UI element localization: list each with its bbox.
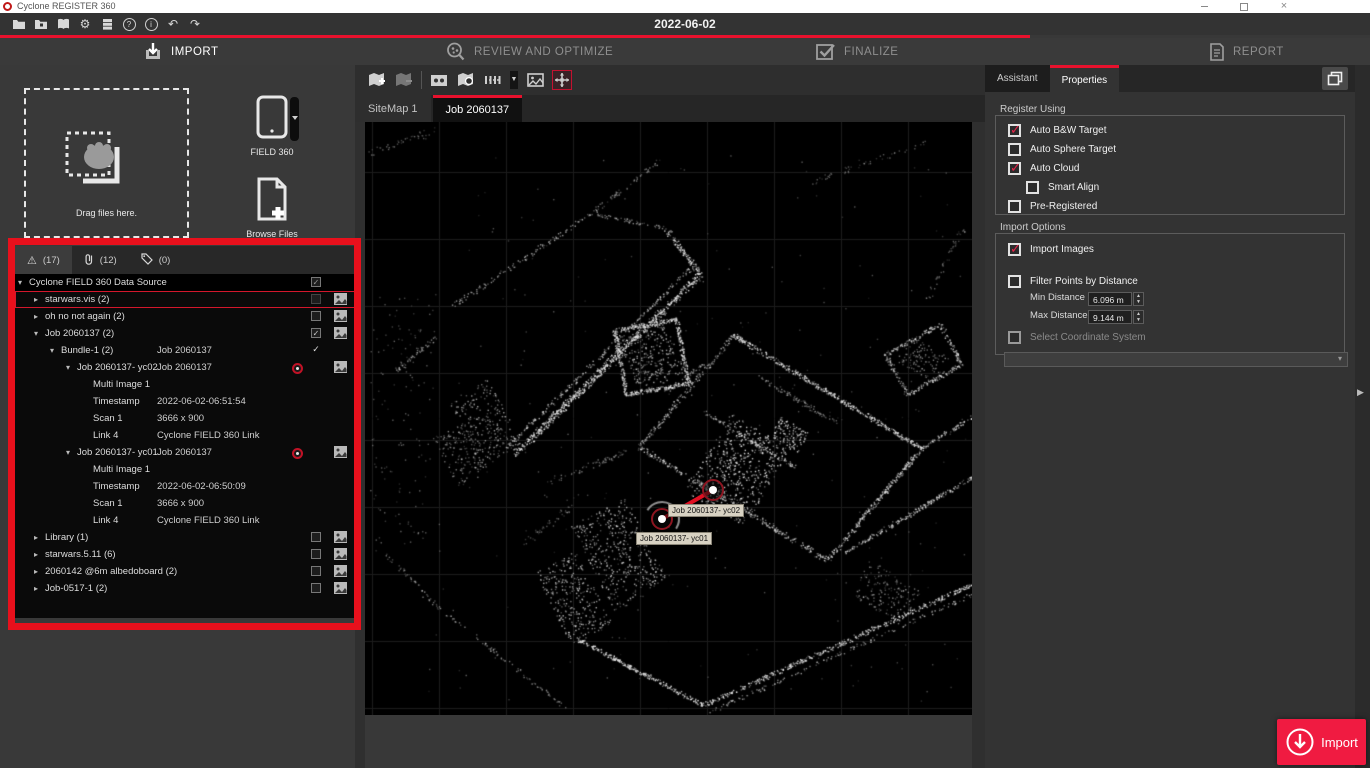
app-title: Cyclone REGISTER 360 <box>17 0 116 13</box>
scan-marker[interactable] <box>702 479 724 501</box>
option-auto-b-w-target[interactable]: ✓Auto B&W Target <box>1008 123 1336 141</box>
thumbnail-image-icon[interactable] <box>334 310 347 322</box>
tree-row[interactable]: ▸Library (1) <box>15 529 355 546</box>
filter-points-checkbox[interactable] <box>1008 275 1021 288</box>
sitemap-tabs: SiteMap 1 Job 2060137 <box>355 95 985 122</box>
tree-row-label: Job-0517-1 (2) <box>45 580 107 597</box>
import-arrow-icon <box>1285 727 1315 757</box>
open-project-icon[interactable] <box>12 16 26 32</box>
tree-row[interactable]: Multi Image 1 <box>15 461 355 478</box>
issues-count: (17) <box>43 255 60 266</box>
register-using-group: ✓Auto B&W TargetAuto Sphere Target✓Auto … <box>995 115 1345 215</box>
tree-row-label: starwars.5.11 (6) <box>45 546 116 563</box>
tree-row-label: Bundle-1 (2) <box>61 342 113 359</box>
import-project-icon[interactable] <box>34 16 48 32</box>
tree-row[interactable]: Scan 13666 x 900 <box>15 495 355 512</box>
collapse-arrow-icon[interactable]: ▾ <box>34 325 38 342</box>
tree-row-value: 3666 x 900 <box>157 495 204 512</box>
option-auto-sphere-target[interactable]: Auto Sphere Target <box>1008 142 1336 160</box>
right-edge-strip <box>1355 65 1370 768</box>
stage-finalize[interactable]: FINALIZE <box>815 38 898 65</box>
checkbox[interactable]: ✓ <box>1008 162 1021 175</box>
option-filter-points[interactable]: Filter Points by Distance <box>1008 274 1338 292</box>
tree-row[interactable]: ▾Job 2060137 (2)✓ <box>15 325 355 342</box>
field360-slider[interactable] <box>290 97 299 141</box>
titlebar: Cyclone REGISTER 360 × <box>0 0 1370 13</box>
tab-properties[interactable]: Properties <box>1050 65 1120 92</box>
tree-row-label: Job 2060137- yc02 <box>77 359 158 376</box>
tags-count: (0) <box>159 255 171 266</box>
tree-row-label: Multi Image 1 <box>93 376 150 393</box>
tree-checkbox[interactable]: ✓ <box>311 277 321 287</box>
tree-row-value: Cyclone FIELD 360 Link <box>157 512 259 529</box>
import-tray-icon <box>142 42 164 62</box>
tree-row[interactable]: ▸starwars.5.11 (6) <box>15 546 355 563</box>
tree-row[interactable]: ▾Bundle-1 (2)Job 2060137✓ <box>15 342 355 359</box>
tree-checkbox[interactable]: ✓ <box>311 345 321 355</box>
scan-marker-label: Job 2060137- yc01 <box>636 532 712 545</box>
tree-checkbox[interactable] <box>311 294 321 304</box>
tree-checkbox[interactable] <box>311 311 321 321</box>
tree-row-label: starwars.vis (2) <box>45 291 109 308</box>
thumbnail-image-icon[interactable] <box>334 582 347 594</box>
finalize-check-icon <box>815 42 837 62</box>
app-icon <box>3 2 12 11</box>
tree-row-label: Scan 1 <box>93 495 123 512</box>
tree-checkbox[interactable] <box>311 532 321 542</box>
min-distance-spinner[interactable]: ▲▼ <box>1133 292 1144 306</box>
tree-checkbox[interactable]: ✓ <box>311 328 321 338</box>
min-distance-row: Min Distance 6.096 m ▲▼ <box>1030 292 1330 307</box>
tree-row[interactable]: Multi Image 1 <box>15 376 355 393</box>
import-button[interactable]: Import <box>1277 719 1366 765</box>
manual-icon[interactable] <box>56 16 70 32</box>
checkbox[interactable] <box>1008 143 1021 156</box>
tree-row[interactable]: ▾Job 2060137- yc02Job 2060137 <box>15 359 355 376</box>
checkbox[interactable] <box>1026 181 1039 194</box>
tree-row-value: 3666 x 900 <box>157 410 204 427</box>
tree-checkbox[interactable] <box>311 583 321 593</box>
coordinate-system-dropdown[interactable] <box>1004 352 1348 367</box>
import-options-group: ✓ Import Images Filter Points by Distanc… <box>995 233 1345 355</box>
storage-icon[interactable] <box>100 16 114 32</box>
tree-row-label: Job 2060137- yc01 <box>77 444 158 461</box>
stage-import[interactable]: IMPORT <box>142 38 219 65</box>
browse-files-icon <box>253 177 291 221</box>
tree-row[interactable]: Timestamp2022-06-02-06:51:54 <box>15 393 355 410</box>
tree-row-value: 2022-06-02-06:50:09 <box>157 478 246 495</box>
option-label: Pre-Registered <box>1030 201 1097 212</box>
expand-arrow-icon[interactable]: ▸ <box>34 546 38 563</box>
check-icon: ✓ <box>1010 241 1021 257</box>
image-band-icon[interactable] <box>429 70 449 90</box>
max-distance-input[interactable]: 9.144 m <box>1088 310 1132 324</box>
maximize-button[interactable] <box>1237 0 1251 13</box>
tree-rows: ▾Cyclone FIELD 360 Data Source✓▸starwars… <box>15 274 355 597</box>
option-select-coordinate-system[interactable]: Select Coordinate System <box>1008 330 1338 348</box>
point-cloud-viewport[interactable]: Job 2060137- yc01Job 2060137- yc02 <box>365 122 972 715</box>
thumbnail-image-icon[interactable] <box>334 361 347 373</box>
drag-hand-icon <box>59 125 155 203</box>
thumbnail-image-icon[interactable] <box>334 293 347 305</box>
undo-icon[interactable]: ↶ <box>166 16 180 32</box>
register-using-options: ✓Auto B&W TargetAuto Sphere Target✓Auto … <box>1008 123 1336 218</box>
tree-row-label: Library (1) <box>45 529 88 546</box>
expand-arrow-icon[interactable]: ▸ <box>34 291 38 308</box>
menubar-icons: ⚙ ? i ↶ ↷ <box>12 15 202 33</box>
register-using-title: Register Using <box>1000 104 1066 115</box>
import-options-title: Import Options <box>1000 222 1066 233</box>
min-distance-input[interactable]: 6.096 m <box>1088 292 1132 306</box>
cyclone-register-360-window: Cyclone REGISTER 360 × 2022-06-02 ⚙ ? i … <box>0 0 1370 768</box>
stage-review-and-optimize[interactable]: REVIEW AND OPTIMIZE <box>445 38 613 65</box>
minimize-button[interactable] <box>1197 0 1211 13</box>
data-source-tree: ⚠ (17) (12) (0) ▾Cyclone FIELD 360 Data … <box>15 246 355 618</box>
browse-files-label: Browse Files <box>240 229 304 239</box>
panel-expand-arrow[interactable]: ▶ <box>1357 386 1367 398</box>
help-icon[interactable]: ? <box>122 16 136 32</box>
checkbox[interactable]: ✓ <box>1008 124 1021 137</box>
tree-row-label: Multi Image 1 <box>93 461 150 478</box>
option-smart-align[interactable]: Smart Align <box>1008 180 1336 198</box>
tree-row-label: Link 4 <box>93 512 118 529</box>
thumbnail-image-icon[interactable] <box>334 565 347 577</box>
menubar: 2022-06-02 ⚙ ? i ↶ ↷ <box>0 13 1370 35</box>
fence-icon[interactable] <box>483 70 503 90</box>
thumbnail-image-icon[interactable] <box>334 531 347 543</box>
status-dot-icon <box>292 448 303 459</box>
fence-dropdown-caret[interactable]: ▼ <box>510 71 518 89</box>
tab-links[interactable]: (12) <box>72 246 129 274</box>
fit-view-icon[interactable] <box>552 70 572 90</box>
paperclip-icon <box>84 253 94 268</box>
settings-gear-icon[interactable]: ⚙ <box>78 16 92 32</box>
tree-row-label: Timestamp <box>93 478 140 495</box>
point-cloud-canvas <box>365 122 972 715</box>
tab-issues[interactable]: ⚠ (17) <box>15 246 72 274</box>
redo-icon[interactable]: ↷ <box>188 16 202 32</box>
option-label: Smart Align <box>1048 182 1099 193</box>
option-label: Auto B&W Target <box>1030 125 1107 136</box>
expand-arrow-icon[interactable]: ▸ <box>34 563 38 580</box>
checkbox[interactable] <box>1008 200 1021 213</box>
option-auto-cloud[interactable]: ✓Auto Cloud <box>1008 161 1336 179</box>
max-distance-spinner[interactable]: ▲▼ <box>1133 310 1144 324</box>
option-label: Auto Cloud <box>1030 163 1079 174</box>
info-icon[interactable]: i <box>144 16 158 32</box>
add-sitemap-icon[interactable] <box>367 70 387 90</box>
tree-row[interactable]: Scan 13666 x 900 <box>15 410 355 427</box>
tree-row-label: oh no not again (2) <box>45 308 125 325</box>
properties-tabs: Assistant Properties <box>985 65 1355 92</box>
tree-checkbox[interactable] <box>311 549 321 559</box>
max-distance-row: Max Distance 9.144 m ▲▼ <box>1030 310 1330 325</box>
tab-sitemap-1[interactable]: SiteMap 1 <box>355 95 431 122</box>
import-images-checkbox[interactable]: ✓ <box>1008 243 1021 256</box>
import-button-label: Import <box>1321 735 1358 750</box>
expand-arrow-icon[interactable]: ▸ <box>34 308 38 325</box>
project-date: 2022-06-02 <box>0 13 1370 35</box>
collapse-arrow-icon[interactable]: ▾ <box>66 444 70 461</box>
tags-icon <box>141 253 153 268</box>
field360-label: FIELD 360 <box>242 147 302 157</box>
collapse-arrow-icon[interactable]: ▾ <box>50 342 54 359</box>
image-icon[interactable] <box>525 70 545 90</box>
thumbnail-image-icon[interactable] <box>334 548 347 560</box>
tree-row-label: Cyclone FIELD 360 Data Source <box>29 274 167 291</box>
tree-row-label: Job 2060137 (2) <box>45 325 114 342</box>
expand-arrow-icon[interactable]: ▸ <box>34 580 38 597</box>
layers-icon[interactable] <box>1322 67 1348 90</box>
tree-row[interactable]: ▾Job 2060137- yc01Job 2060137 <box>15 444 355 461</box>
status-dot-icon <box>292 363 303 374</box>
option-label: Auto Sphere Target <box>1030 144 1116 155</box>
stage-report[interactable]: REPORT <box>1208 38 1284 65</box>
right-splitter[interactable] <box>972 65 985 768</box>
map-pin-icon[interactable] <box>456 70 476 90</box>
tree-tabs: ⚠ (17) (12) (0) <box>15 246 355 274</box>
remove-sitemap-icon[interactable] <box>394 70 414 90</box>
browse-files-button[interactable]: Browse Files <box>240 177 304 239</box>
toolbar-separator <box>421 71 422 89</box>
tab-job-2060137[interactable]: Job 2060137 <box>433 95 523 122</box>
tree-row-value: Job 2060137 <box>157 342 212 359</box>
tree-row[interactable]: ▸Job-0517-1 (2) <box>15 580 355 597</box>
option-pre-registered[interactable]: Pre-Registered <box>1008 199 1336 217</box>
warning-icon: ⚠ <box>27 254 37 267</box>
tree-row-value: Cyclone FIELD 360 Link <box>157 427 259 444</box>
workflow-ribbon: IMPORT REVIEW AND OPTIMIZE FINALIZE REPO… <box>0 38 1370 66</box>
tree-row-value: 2022-06-02-06:51:54 <box>157 393 246 410</box>
option-import-images[interactable]: ✓ Import Images <box>1008 242 1338 260</box>
tree-row-label: 2060142 @6m albedoboard (2) <box>45 563 177 580</box>
tab-assistant[interactable]: Assistant <box>985 65 1050 92</box>
tab-tags[interactable]: (0) <box>129 246 183 274</box>
tree-row[interactable]: Link 4Cyclone FIELD 360 Link <box>15 512 355 529</box>
drag-files-label: Drag files here. <box>26 208 187 218</box>
tree-checkbox[interactable] <box>311 566 321 576</box>
check-icon: ✓ <box>1010 160 1021 176</box>
collapse-arrow-icon[interactable]: ▾ <box>18 274 22 291</box>
properties-panel: Assistant Properties Register Using ✓Aut… <box>985 65 1355 768</box>
tree-row[interactable]: ▾Cyclone FIELD 360 Data Source✓ <box>15 274 355 291</box>
tree-row-label: Link 4 <box>93 427 118 444</box>
field360-tablet-icon <box>255 95 289 139</box>
collapse-arrow-icon[interactable]: ▾ <box>66 359 70 376</box>
thumbnail-image-icon[interactable] <box>334 327 347 339</box>
review-magnifier-icon <box>445 41 467 63</box>
tree-row[interactable]: Link 4Cyclone FIELD 360 Link <box>15 427 355 444</box>
expand-arrow-icon[interactable]: ▸ <box>34 529 38 546</box>
tree-row-label: Scan 1 <box>93 410 123 427</box>
tree-row[interactable]: ▸starwars.vis (2) <box>15 291 355 308</box>
tree-row-value: Job 2060137 <box>157 359 212 376</box>
tree-row[interactable]: ▸2060142 @6m albedoboard (2) <box>15 563 355 580</box>
sitemap-toolbar: ▼ <box>355 65 985 95</box>
left-splitter[interactable] <box>355 65 365 768</box>
close-button[interactable]: × <box>1277 0 1291 13</box>
tree-row[interactable]: ▸oh no not again (2) <box>15 308 355 325</box>
drag-files-dropzone[interactable]: Drag files here. <box>24 88 189 238</box>
scan-marker-label: Job 2060137- yc02 <box>668 504 744 517</box>
tree-row[interactable]: Timestamp2022-06-02-06:50:09 <box>15 478 355 495</box>
check-icon: ✓ <box>1010 122 1021 138</box>
tree-row-value: Job 2060137 <box>157 444 212 461</box>
thumbnail-image-icon[interactable] <box>334 446 347 458</box>
links-count: (12) <box>100 255 117 266</box>
report-doc-icon <box>1208 42 1226 62</box>
tree-row-label: Timestamp <box>93 393 140 410</box>
coordinate-system-checkbox[interactable] <box>1008 331 1021 344</box>
